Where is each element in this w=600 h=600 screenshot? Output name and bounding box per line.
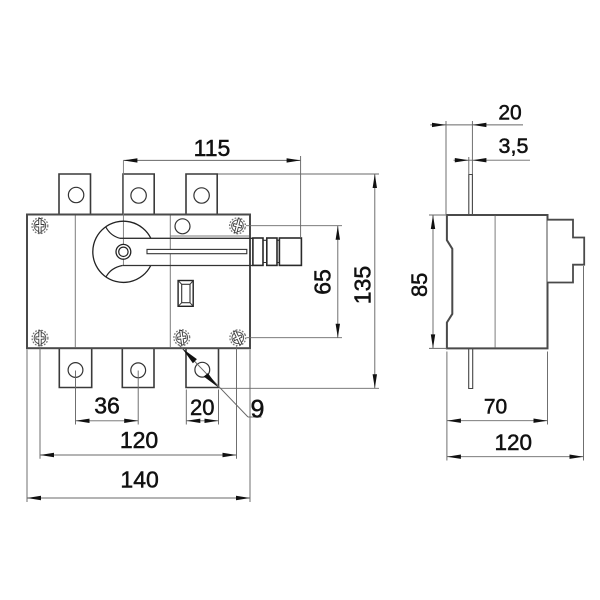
svg-text:3,5: 3,5 [499, 134, 529, 158]
svg-text:120: 120 [120, 427, 158, 453]
svg-text:70: 70 [484, 396, 507, 419]
svg-text:20: 20 [498, 101, 521, 124]
svg-text:9: 9 [251, 396, 265, 424]
svg-text:65: 65 [310, 269, 336, 295]
svg-text:135: 135 [350, 266, 376, 304]
svg-text:36: 36 [94, 393, 120, 419]
svg-text:140: 140 [120, 467, 158, 493]
svg-text:115: 115 [194, 135, 231, 161]
svg-text:85: 85 [407, 273, 432, 297]
svg-text:120: 120 [495, 430, 533, 455]
svg-text:20: 20 [190, 395, 214, 420]
